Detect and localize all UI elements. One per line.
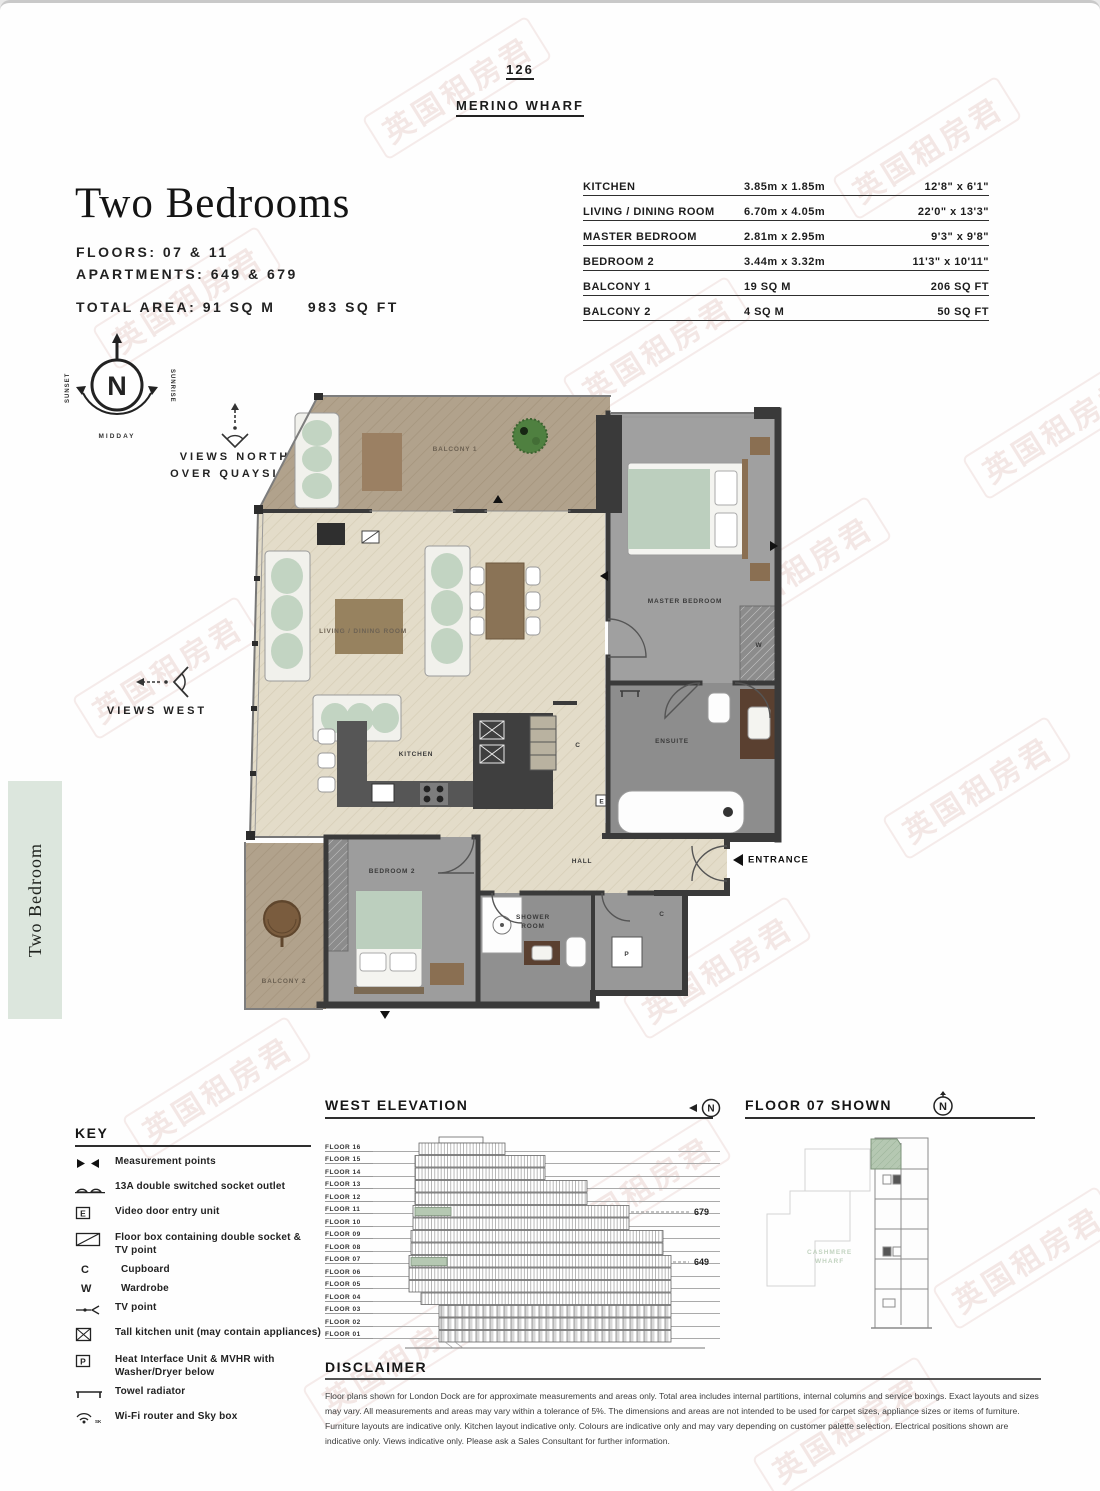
toilet (708, 693, 730, 723)
bar-stool (318, 729, 335, 744)
floor-label: FLOOR 12 (325, 1194, 373, 1202)
svg-text:N: N (939, 1101, 947, 1113)
floors-label: FLOORS: 07 & 11 (76, 244, 229, 260)
bar-stool (318, 777, 335, 792)
headboard (354, 987, 424, 994)
double-socket-icon (75, 1180, 115, 1199)
svg-text:SKY: SKY (95, 1419, 101, 1424)
video-entry-icon: E (75, 1205, 115, 1225)
floor-box-icon (75, 1231, 115, 1252)
floor-label: FLOOR 05 (325, 1281, 373, 1289)
metric-size: 2.81m x 2.95m (744, 231, 879, 243)
west-elevation-title: WEST ELEVATION (325, 1097, 720, 1113)
floor-label: FLOOR 04 (325, 1294, 373, 1302)
sink (372, 784, 394, 802)
svg-text:BALCONY 2: BALCONY 2 (262, 978, 307, 985)
highlighted-unit (871, 1139, 901, 1169)
headboard (742, 459, 748, 559)
wifi-icon: SKY (75, 1410, 115, 1429)
hob (420, 783, 448, 805)
disclaimer-text: Floor plans shown for London Dock are fo… (325, 1389, 1041, 1449)
svg-text:ENSUITE: ENSUITE (655, 738, 689, 745)
hanging-chair (264, 901, 300, 937)
dining-table (486, 563, 524, 639)
room-name: LIVING / DINING ROOM (583, 206, 744, 218)
coffee-table (335, 599, 403, 654)
bed-cover (356, 891, 422, 949)
svg-text:E: E (599, 799, 604, 806)
imperial-size: 9'3" x 9'8" (879, 231, 989, 243)
table-row: LIVING / DINING ROOM6.70m x 4.05m22'0" x… (583, 196, 989, 221)
pillow (390, 953, 416, 971)
west-elevation-section: WEST ELEVATION (325, 1097, 720, 1119)
imperial-size: 22'0" x 13'3" (879, 206, 989, 218)
pillow (360, 953, 386, 971)
nightstand (750, 563, 770, 581)
highlighted-apartment-679 (415, 1208, 451, 1216)
wardrobe (328, 839, 348, 951)
floor-label: FLOOR 11 (325, 1206, 373, 1214)
tv-unit (317, 523, 345, 545)
svg-text:SHOWER: SHOWER (516, 914, 550, 921)
total-area-metric: TOTAL AREA: 91 SQ M (76, 299, 275, 315)
watermark-stamp: 英国租房君 (881, 715, 1072, 860)
floor-label: FLOOR 14 (325, 1169, 373, 1177)
apartment-649-label: 649 (694, 1257, 709, 1267)
floor-label: FLOOR 06 (325, 1269, 373, 1277)
svg-text:ROOM: ROOM (521, 923, 544, 930)
svg-text:SUNRISE: SUNRISE (169, 369, 175, 403)
sidebar-tab-two-bedroom[interactable]: Two Bedroom (8, 781, 62, 1019)
metric-size: 3.85m x 1.85m (744, 181, 879, 193)
imperial-size: 11'3" x 10'11" (879, 256, 989, 268)
metric-size: 6.70m x 4.05m (744, 206, 879, 218)
metric-size: 3.44m x 3.32m (744, 256, 879, 268)
floor-shown-title: FLOOR 07 SHOWN (745, 1097, 1040, 1113)
measurement-points-icon (75, 1155, 115, 1174)
room-name: BALCONY 2 (583, 306, 744, 318)
svg-text:HALL: HALL (572, 858, 593, 865)
svg-text:C: C (575, 742, 581, 749)
balcony-table (362, 433, 402, 491)
site-plan: CASHMERE WHARF (745, 1129, 1040, 1364)
room-name: BALCONY 1 (583, 281, 744, 293)
key-legend: KEY Measurement points 13A double switch… (75, 1125, 325, 1435)
metric-size: 19 SQ M (744, 281, 879, 293)
svg-text:MASTER BEDROOM: MASTER BEDROOM (648, 598, 722, 605)
total-area-imperial: 983 SQ FT (308, 299, 399, 315)
room-name: BEDROOM 2 (583, 256, 744, 268)
site-plan-compass-icon: N (930, 1091, 956, 1122)
room-name: MASTER BEDROOM (583, 231, 744, 243)
floor-label: FLOOR 03 (325, 1306, 373, 1314)
views-west-label: VIEWS WEST (92, 705, 222, 717)
imperial-size: 50 SQ FT (879, 306, 989, 318)
total-area-label: TOTAL AREA: 91 SQ M 983 SQ FT (76, 299, 399, 315)
floor-shown-section: FLOOR 07 SHOWN (745, 1097, 1040, 1119)
west-elevation-drawing: FLOOR 16 FLOOR 15 FLOOR 14 FLOOR 13 (325, 1135, 720, 1363)
floor-label: FLOOR 01 (325, 1331, 373, 1339)
svg-text:BEDROOM 2: BEDROOM 2 (369, 868, 416, 875)
table-row: BALCONY 24 SQ M50 SQ FT (583, 296, 989, 321)
disclaimer-title: DISCLAIMER (325, 1359, 1041, 1375)
wall-block (754, 407, 780, 419)
heat-interface-icon: P (75, 1353, 115, 1373)
video-entry-symbol: E (596, 795, 607, 806)
apartments-label: APARTMENTS: 649 & 679 (76, 266, 298, 282)
svg-text:WHARF: WHARF (815, 1258, 844, 1265)
plant (513, 419, 547, 453)
highlighted-apartment-649 (411, 1258, 447, 1266)
entrance-arrow-icon (733, 854, 743, 866)
floor-label: FLOOR 13 (325, 1181, 373, 1189)
apartment-679-label: 679 (694, 1207, 709, 1217)
table-row: MASTER BEDROOM2.81m x 2.95m9'3" x 9'8" (583, 221, 989, 246)
room-name: KITCHEN (583, 181, 744, 193)
svg-text:SUNSET: SUNSET (65, 373, 71, 403)
watermark-stamp: 英国租房君 (961, 355, 1100, 500)
bench (430, 963, 464, 985)
floor-box-symbol (362, 531, 379, 543)
floor-label: FLOOR 16 (325, 1144, 373, 1152)
header: 126 (420, 61, 620, 79)
svg-text:KITCHEN: KITCHEN (399, 751, 434, 758)
svg-text:E: E (80, 1209, 86, 1219)
tall-kitchen-unit-icon (75, 1326, 115, 1347)
imperial-size: 12'8" x 6'1" (879, 181, 989, 193)
floor-label: FLOOR 09 (325, 1231, 373, 1239)
elevation-building: 679 649 (405, 1135, 720, 1363)
views-west-icon (130, 661, 206, 703)
svg-text:W: W (756, 642, 763, 649)
svg-text:N: N (107, 371, 127, 401)
svg-text:MIDDAY: MIDDAY (98, 433, 135, 440)
entrance-label: ENTRANCE (733, 854, 809, 866)
toilet (566, 937, 586, 967)
svg-text:C: C (659, 911, 665, 918)
svg-text:N: N (707, 1104, 714, 1115)
basin (748, 707, 770, 739)
page-title: Two Bedrooms (75, 179, 350, 228)
floor-label: FLOOR 10 (325, 1219, 373, 1227)
neighbor-label: CASHMERE (807, 1249, 852, 1256)
cupboard-symbol: C (75, 1263, 121, 1276)
wall-block (596, 415, 622, 513)
floor-label: FLOOR 07 (325, 1256, 373, 1264)
pillow (715, 513, 737, 547)
wardrobe-symbol: W (75, 1282, 121, 1295)
imperial-size: 206 SQ FT (879, 281, 989, 293)
metric-size: 4 SQ M (744, 306, 879, 318)
key-title: KEY (75, 1125, 325, 1141)
sidebar-tab-label: Two Bedroom (25, 843, 46, 957)
floorplan: BALCONY 1 LIVING / DINING ROOM KITCHEN (230, 391, 800, 1021)
dimensions-table: KITCHEN3.85m x 1.85m12'8" x 6'1" LIVING … (583, 171, 989, 321)
watermark-stamp: 英国租房君 (361, 15, 552, 160)
bar-stool (318, 753, 335, 768)
floor-label: FLOOR 02 (325, 1319, 373, 1327)
floor-label: FLOOR 15 (325, 1156, 373, 1164)
svg-text:LIVING / DINING ROOM: LIVING / DINING ROOM (319, 628, 407, 635)
table-row: KITCHEN3.85m x 1.85m12'8" x 6'1" (583, 171, 989, 196)
svg-text:P: P (624, 951, 629, 958)
bed-cover (628, 469, 710, 549)
table-row: BALCONY 119 SQ M206 SQ FT (583, 271, 989, 296)
svg-text:P: P (80, 1357, 86, 1367)
towel-radiator-icon (75, 1385, 115, 1404)
tv-point-icon (75, 1301, 115, 1320)
page-number: 126 (506, 62, 534, 80)
elevation-compass-icon: N (688, 1098, 722, 1121)
disclaimer-section: DISCLAIMER Floor plans shown for London … (325, 1359, 1041, 1449)
compass-icon: N SUNSET SUNRISE MIDDAY (55, 333, 185, 451)
brochure-page: 英国租房君 英国租房君 英国租房君 英国租房君 英国租房君 英国租房君 英国租房… (0, 0, 1100, 1491)
pillow (715, 471, 737, 505)
svg-text:BALCONY 1: BALCONY 1 (433, 446, 478, 453)
nightstand (750, 437, 770, 455)
project-name: MERINO WHARF (456, 98, 584, 117)
floor-label: FLOOR 08 (325, 1244, 373, 1252)
table-row: BEDROOM 23.44m x 3.32m11'3" x 10'11" (583, 246, 989, 271)
basin (532, 946, 552, 960)
